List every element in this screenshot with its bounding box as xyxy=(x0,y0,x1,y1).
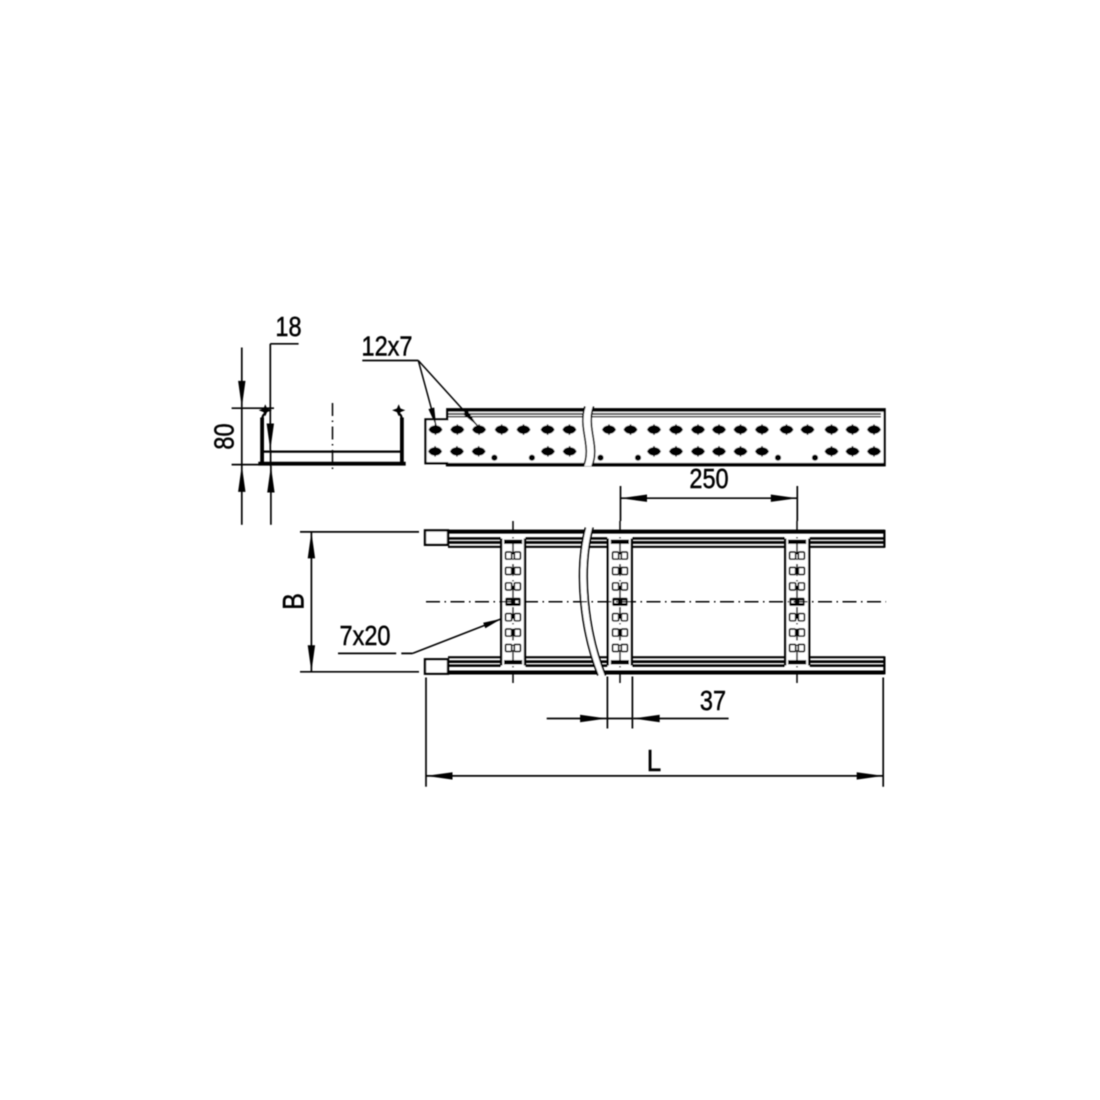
svg-text:7x20: 7x20 xyxy=(340,621,391,651)
svg-text:L: L xyxy=(647,744,661,779)
svg-text:18: 18 xyxy=(275,312,301,342)
svg-text:B: B xyxy=(276,593,310,610)
svg-text:37: 37 xyxy=(700,686,726,716)
svg-text:250: 250 xyxy=(689,464,728,494)
svg-text:80: 80 xyxy=(210,423,240,449)
svg-text:12x7: 12x7 xyxy=(362,332,413,362)
